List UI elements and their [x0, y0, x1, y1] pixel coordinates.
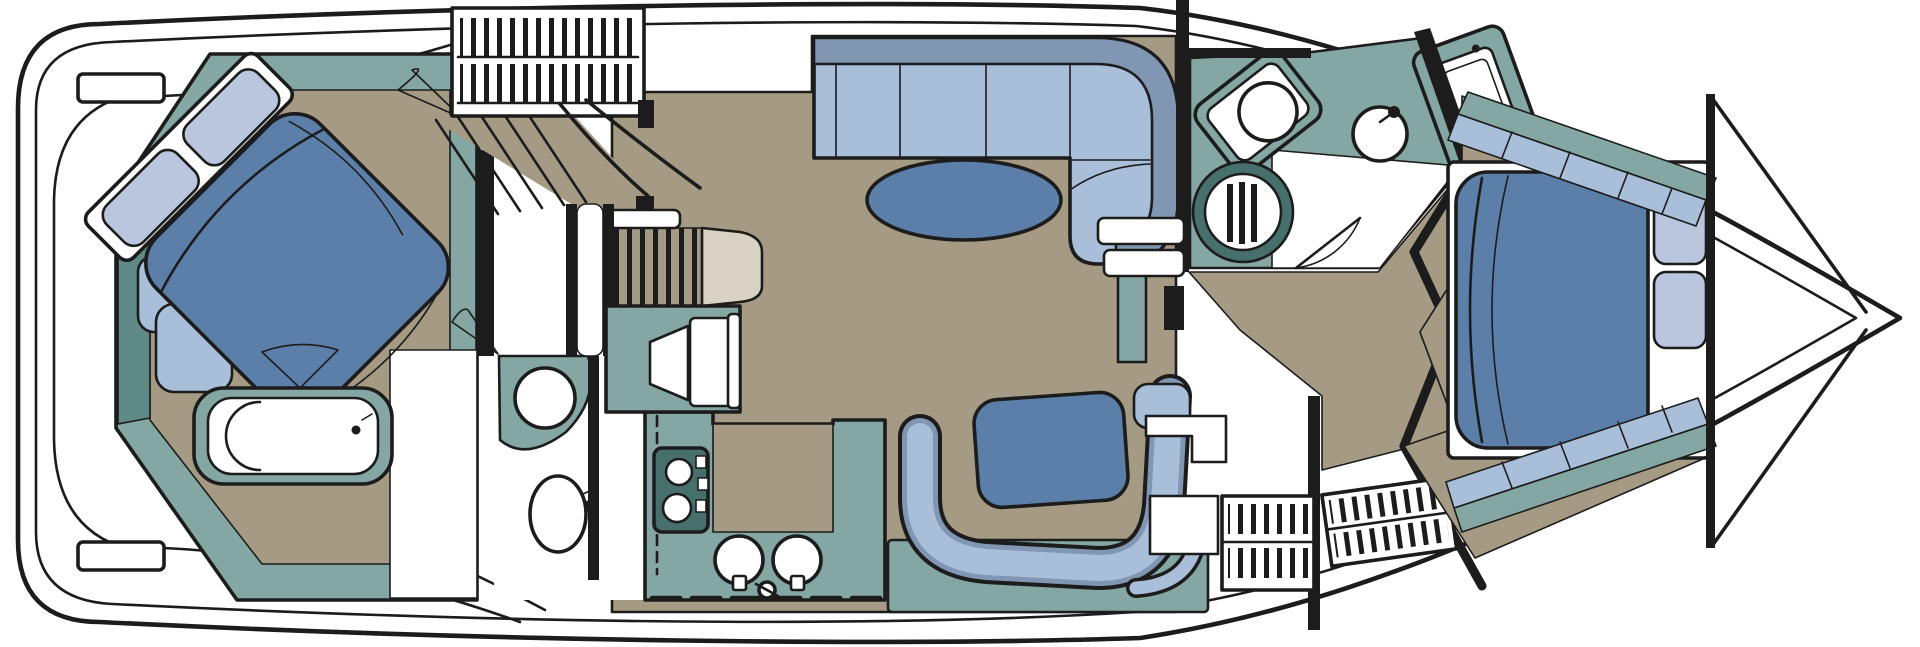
bathtub	[194, 388, 392, 484]
fwd-mattress	[1456, 172, 1648, 448]
wall-galley-head	[588, 356, 599, 580]
burner-2	[663, 494, 691, 522]
toilet-slat-1	[1227, 184, 1233, 242]
hatch1-ticks-2	[1228, 548, 1308, 578]
aft-toilet	[515, 368, 575, 428]
swim-step-top	[78, 74, 164, 102]
wall-passage-left	[566, 204, 577, 356]
sink-drain-left	[733, 576, 746, 590]
swim-step-bottom	[78, 542, 164, 570]
wall-corridor-block	[1164, 286, 1184, 330]
lower-steps	[604, 228, 702, 306]
step-landing	[702, 228, 762, 306]
wall-aft-cabin-lower	[477, 150, 494, 356]
galley-island-counter	[713, 424, 833, 532]
lower-step-top	[604, 210, 680, 228]
yacht-floorplan-diagram	[0, 0, 1920, 646]
aft-dressing-area	[390, 350, 477, 598]
aft-sink	[530, 476, 586, 552]
ladder-hatch-port	[1222, 496, 1314, 590]
ladder-hatch-ticks-row2	[460, 64, 636, 102]
hatch1-ticks-1	[1228, 504, 1308, 534]
toilet-slat-3	[1251, 184, 1257, 242]
head-toilet	[1193, 162, 1293, 262]
tv-shelf	[728, 314, 740, 408]
stove-knob-1	[696, 456, 706, 468]
wall-head-top	[1189, 48, 1311, 58]
dinette-counter-lower	[1150, 496, 1218, 554]
stove-knob-2	[698, 478, 708, 490]
corridor-step-2	[1104, 250, 1184, 276]
jamb-upper	[638, 100, 654, 128]
fwd-pillow-bottom	[1654, 272, 1706, 348]
ladder-hatch-ticks-row1	[460, 18, 636, 56]
oval-coffee-table	[867, 160, 1061, 240]
pocket-door	[577, 204, 603, 356]
tv-body	[690, 318, 732, 406]
sink-drain-right	[791, 576, 804, 590]
tub-basin	[208, 398, 378, 474]
bow-bulkhead	[1706, 94, 1715, 548]
stove	[654, 448, 708, 532]
floorplan-page: Motor yacht lower-deck interior floor pl…	[0, 0, 1920, 646]
tub-faucet	[352, 426, 361, 435]
burner-1	[666, 459, 692, 485]
corridor-step-1	[1098, 218, 1184, 244]
dinette-side-cabinet	[1118, 266, 1146, 362]
dinette-table	[972, 391, 1129, 509]
toilet-slat-2	[1239, 182, 1245, 244]
stove-knob-3	[696, 500, 706, 512]
